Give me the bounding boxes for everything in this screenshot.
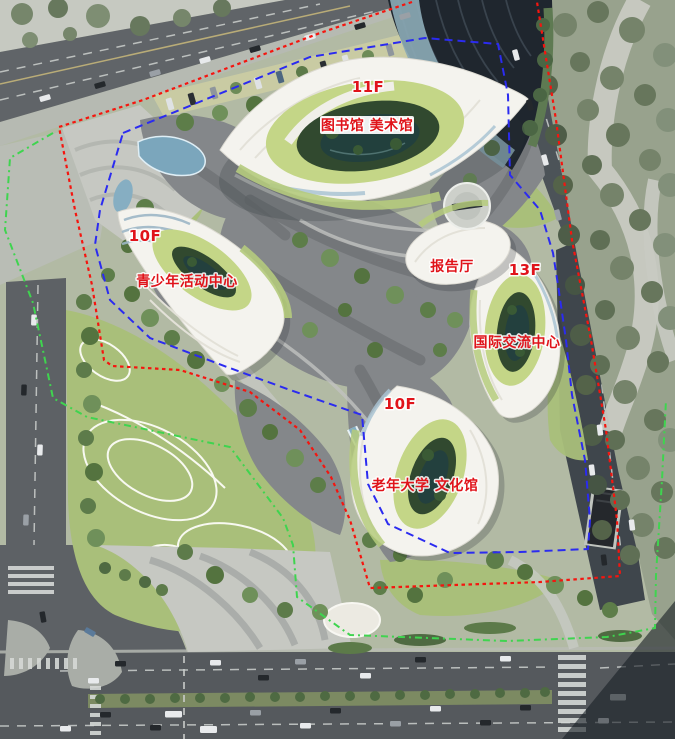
exchange-name-label: 国际交流中心 (474, 334, 561, 351)
lecture-name-label: 报告厅 (430, 258, 474, 275)
youth-name-label: 青少年活动中心 (136, 273, 238, 290)
site-plan-rendering: 11F 图书馆 美术馆 10F 青少年活动中心 报告厅 13F 国际交流中心 1… (0, 0, 675, 739)
white-dome (324, 603, 380, 637)
culture-name-label: 老年大学 文化馆 (372, 477, 479, 494)
youth-floor-label: 10F (129, 227, 162, 245)
site-plan-canvas: 11F 图书馆 美术馆 10F 青少年活动中心 报告厅 13F 国际交流中心 1… (0, 0, 675, 739)
library-floor-label: 11F (352, 78, 385, 96)
library-name-label: 图书馆 美术馆 (321, 117, 413, 134)
culture-floor-label: 10F (384, 395, 417, 413)
exchange-floor-label: 13F (509, 261, 542, 279)
